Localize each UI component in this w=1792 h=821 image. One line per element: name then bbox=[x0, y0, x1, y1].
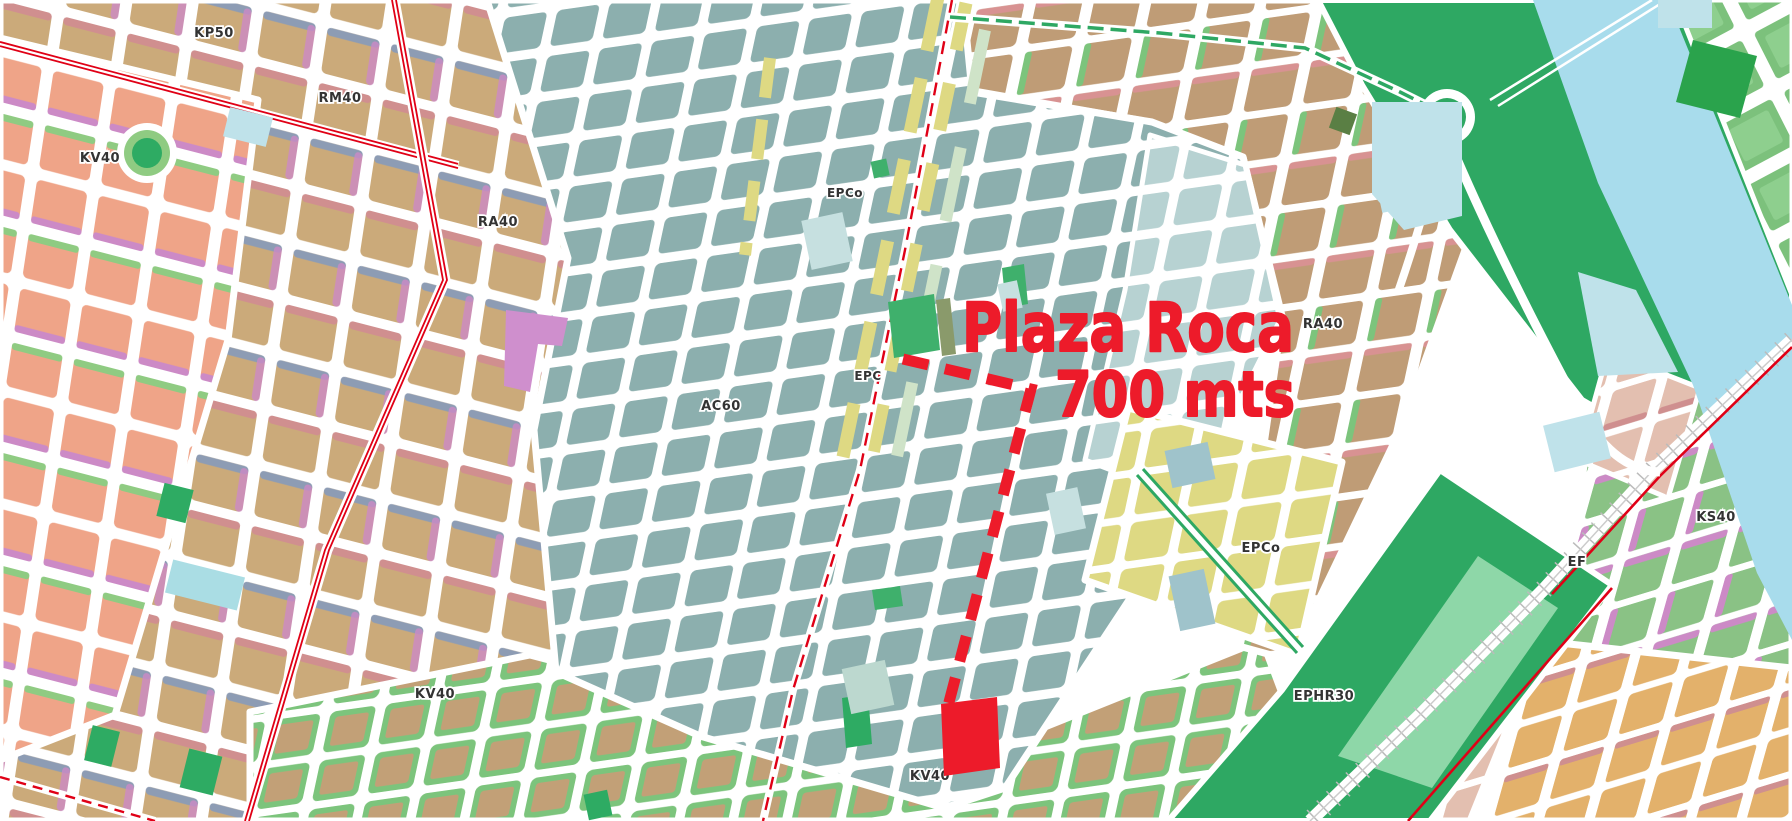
zone-label-epco-right: EPCo bbox=[1242, 541, 1281, 556]
zoning-map[interactable]: KP50 RM40 KV40 RA40 EPCo EPC AC60 RA40 E… bbox=[0, 0, 1792, 821]
zone-label-ac60: AC60 bbox=[701, 399, 741, 414]
roundabout-left bbox=[117, 123, 177, 183]
zone-label-rm40: RM40 bbox=[318, 91, 361, 106]
highlight-parcel[interactable] bbox=[941, 697, 1000, 776]
plaza-roca-park bbox=[888, 294, 940, 358]
zone-label-epc: EPC bbox=[854, 369, 881, 383]
zone-label-kp50: KP50 bbox=[194, 26, 234, 41]
zone-label-ephr30: EPHR30 bbox=[1294, 689, 1354, 704]
map-canvas[interactable]: KP50 RM40 KV40 RA40 EPCo EPC AC60 RA40 E… bbox=[0, 0, 1792, 821]
zone-label-kv40-mid: KV40 bbox=[415, 687, 455, 702]
zone-label-ks40: KS40 bbox=[1696, 510, 1736, 525]
zone-label-ra40-right: RA40 bbox=[1303, 317, 1343, 332]
zone-label-epco-center: EPCo bbox=[827, 186, 863, 200]
zone-label-ra40-left: RA40 bbox=[478, 215, 518, 230]
annotation-title: Plaza Roca bbox=[962, 289, 1294, 368]
zone-label-kv40-left: KV40 bbox=[80, 151, 120, 166]
annotation-distance: 700 mts bbox=[1055, 358, 1295, 431]
zone-label-ef: EF bbox=[1568, 555, 1587, 570]
